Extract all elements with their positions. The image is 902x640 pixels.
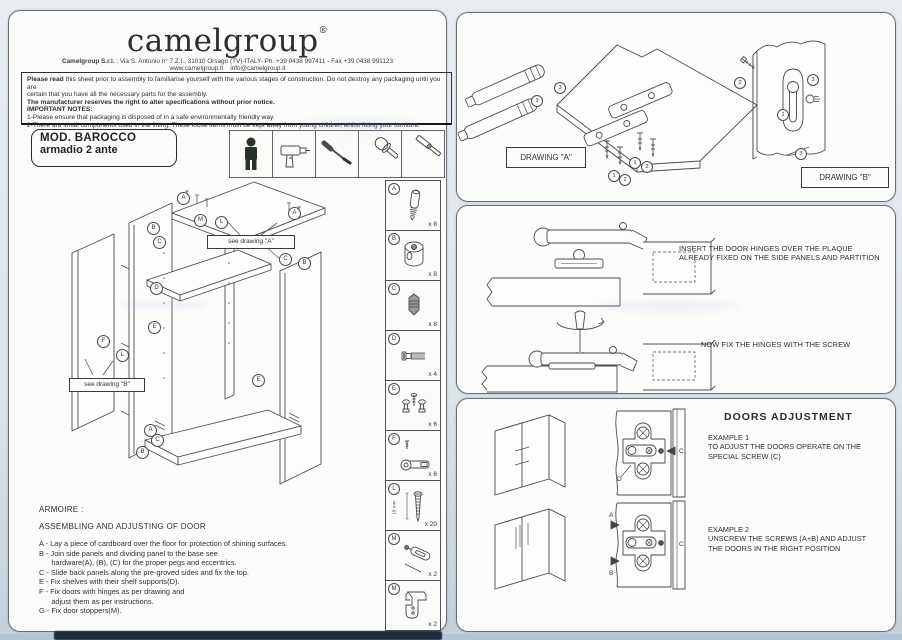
hinge-instruction-1: INSERT THE DOOR HINGES OVER THE PLAQUE A…	[679, 244, 880, 262]
diagram-callout: C	[279, 253, 292, 266]
diagram-callout: M	[194, 214, 207, 227]
part-qty: x 6	[428, 421, 437, 428]
diagram-callout: B	[147, 222, 160, 235]
screwdriver-icon	[315, 130, 359, 178]
hinge-instruction-1-line1: INSERT THE DOOR HINGES OVER THE PLAQUE	[679, 244, 880, 253]
parts-list: A x 8 B x 8 C x 8 D x 4 E x	[385, 181, 441, 631]
model-number: MOD. BAROCCO	[40, 132, 168, 144]
example-2-line2: THE DOORS IN THE RIGHT POSITION	[708, 544, 866, 553]
diagram-callout: A	[177, 192, 190, 205]
company-name: Camelgroup S.r.l.	[62, 58, 115, 65]
diagram-callout: L	[215, 216, 228, 229]
anchor-peg-icon	[399, 288, 429, 324]
part-qty: x 8	[428, 221, 437, 228]
plate1-label-c: C	[679, 448, 684, 455]
drawing-b-label: DRAWING "B"	[801, 167, 889, 188]
diagram-callout: C	[153, 236, 166, 249]
part-qty: x 20	[425, 521, 437, 528]
diagram-callout: D	[150, 282, 163, 295]
diagram-callout: E	[252, 374, 265, 387]
instruction-line: G - Fix door stoppers(M).	[39, 606, 288, 616]
brand-logo: camelgroup®	[9, 23, 446, 59]
example-1-text: EXAMPLE 1 TO ADJUST THE DOORS OPERATE ON…	[708, 433, 861, 461]
part-dimension-label: 18 mm	[392, 500, 397, 514]
notice-line-1: Please read this sheet prior to assembly…	[27, 76, 446, 91]
diagram-callout: C	[151, 434, 164, 447]
peg-icon	[399, 188, 429, 224]
hammer-icon	[401, 130, 445, 178]
drawing-a-callout: 2	[619, 174, 631, 186]
instruction-line: C - Slide back panels along the pre-grov…	[39, 568, 288, 578]
part-item-f: F x 6	[385, 430, 441, 481]
brand-logo-text: camelgroup	[127, 23, 319, 59]
diagram-callout: A	[288, 207, 301, 220]
part-item-l: L 18 mm x 20	[385, 480, 441, 531]
hinge-icon	[399, 438, 433, 474]
drill-icon	[272, 130, 316, 178]
left-page: camelgroup® Camelgroup S.r.l. : Via S. A…	[8, 10, 447, 632]
notice-line-2: certain that you have all the necessary …	[27, 91, 446, 99]
model-description: armadio 2 ante	[40, 144, 168, 156]
part-item-c: C x 8	[385, 280, 441, 331]
company-address: Camelgroup S.r.l. : Via S. Antonio n° 7 …	[9, 58, 446, 65]
scan-smudge	[300, 118, 420, 132]
drawing-b-callout: 1	[777, 109, 789, 121]
assembly-instruction-sheet: camelgroup® Camelgroup S.r.l. : Via S. A…	[0, 0, 902, 640]
part-qty: x 2	[428, 621, 437, 628]
plate2-label-b: B	[609, 570, 613, 577]
part-item-a: A x 8	[385, 180, 441, 231]
person-icon	[229, 130, 273, 178]
part-qty: x 8	[428, 271, 437, 278]
model-box: MOD. BAROCCO armadio 2 ante	[31, 129, 177, 167]
diagram-callout: B	[298, 257, 311, 270]
notice-line-3: The manufacturer reserves the right to a…	[27, 99, 446, 107]
part-qty: x 6	[428, 471, 437, 478]
part-qty: x 2	[428, 571, 437, 578]
cam-lock-icon	[399, 238, 429, 274]
example-2-title: EXAMPLE 2	[708, 525, 866, 534]
example-1-title: EXAMPLE 1	[708, 433, 861, 442]
drawings-panel: DRAWING "A" DRAWING "B" 3 3 1 2 1 2 2 1 …	[456, 12, 896, 202]
latch-pin-icon	[399, 538, 433, 574]
bolt-icon	[399, 338, 429, 374]
example-2-line1: UNSCREW THE SCREWS (A+B) AND ADJUST	[708, 534, 866, 543]
part-qty: x 8	[428, 321, 437, 328]
instruction-line: adjust them as per instructions.	[39, 597, 288, 607]
instructions-subtitle: ASSEMBLING AND ADJUSTING OF DOOR	[39, 522, 288, 531]
notice-line-4: IMPORTANT NOTES:	[27, 106, 446, 114]
drawing-b-callout: 3	[795, 148, 807, 160]
mallet-icon	[358, 130, 402, 178]
see-drawing-a-label: see drawing "A"	[207, 235, 295, 249]
assembly-instructions: ARMOIRE : ASSEMBLING AND ADJUSTING OF DO…	[39, 505, 288, 616]
plate2-label-c: C	[679, 541, 684, 548]
website-text: www.camelgroup.it	[170, 65, 224, 72]
drawing-a-callout: 3	[531, 95, 543, 107]
example-1-line1: TO ADJUST THE DOORS OPERATE ON THE	[708, 442, 861, 451]
hinge-instruction-1-line2: ALREADY FIXED ON THE SIDE PANELS AND PAR…	[679, 253, 880, 262]
scan-shadow-bar	[54, 631, 442, 640]
company-contacts: www.camelgroup.it info@camelgroup.it	[9, 65, 446, 72]
notice-box: Please read this sheet prior to assembly…	[21, 72, 452, 125]
hinge-instruction-2: NOW FIX THE HINGES WITH THE SCREW	[701, 340, 850, 349]
drawing-a-callout: 2	[641, 161, 653, 173]
drawing-a-callout: 1	[629, 157, 641, 169]
screw-icon	[399, 488, 429, 524]
instruction-line: B - Join side panels and dividing panel …	[39, 549, 288, 559]
plate1-label-d: D	[617, 476, 622, 483]
example-2-text: EXAMPLE 2 UNSCREW THE SCREWS (A+B) AND A…	[708, 525, 866, 553]
instruction-line: F - Fix doors with hinges as per drawing…	[39, 587, 288, 597]
shelf-support-icon	[399, 388, 429, 424]
part-item-m-stopper: M x 2	[385, 580, 441, 631]
diagram-callout: E	[148, 321, 161, 334]
instruction-line: hardware(A), (B), (C) for the proper peg…	[39, 558, 288, 568]
part-qty: x 4	[428, 371, 437, 378]
drawing-a-label: DRAWING "A"	[506, 147, 586, 168]
registered-mark: ®	[319, 26, 329, 36]
plate2-label-a: A	[609, 512, 614, 519]
exploded-wardrobe-diagram: see drawing "A" see drawing "B" A A M L …	[37, 173, 382, 503]
diagram-callout: F	[97, 335, 110, 348]
part-item-e: E x 6	[385, 380, 441, 431]
drawing-a-callout: 3	[554, 82, 566, 94]
diagram-callout: B	[136, 446, 149, 459]
exploded-wardrobe-art	[37, 173, 382, 503]
scan-smudge	[120, 300, 210, 310]
email-text: info@camelgroup.it	[230, 65, 285, 72]
part-item-b: B x 8	[385, 230, 441, 281]
drawing-b-callout: 3	[807, 74, 819, 86]
tools-strip	[230, 130, 445, 178]
scan-smudge	[600, 300, 740, 312]
part-item-m-latch: M x 2	[385, 530, 441, 581]
company-address-text: : Via S. Antonio n° 7 Z.I., 31010 Orsago…	[115, 58, 393, 65]
instruction-line: A - Lay a piece of cardboard over the fl…	[39, 539, 288, 549]
diagram-callout: L	[116, 349, 129, 362]
drawing-b-callout: 2	[734, 77, 746, 89]
example-1-line2: SPECIAL SCREW (C)	[708, 452, 861, 461]
see-drawing-b-label: see drawing "B"	[69, 378, 145, 392]
part-item-d: D x 4	[385, 330, 441, 381]
doors-adjustment-panel: DOORS ADJUSTMENT	[456, 398, 896, 632]
instructions-title: ARMOIRE :	[39, 505, 288, 514]
instruction-line: E - Fix shelves with their shelf support…	[39, 577, 288, 587]
